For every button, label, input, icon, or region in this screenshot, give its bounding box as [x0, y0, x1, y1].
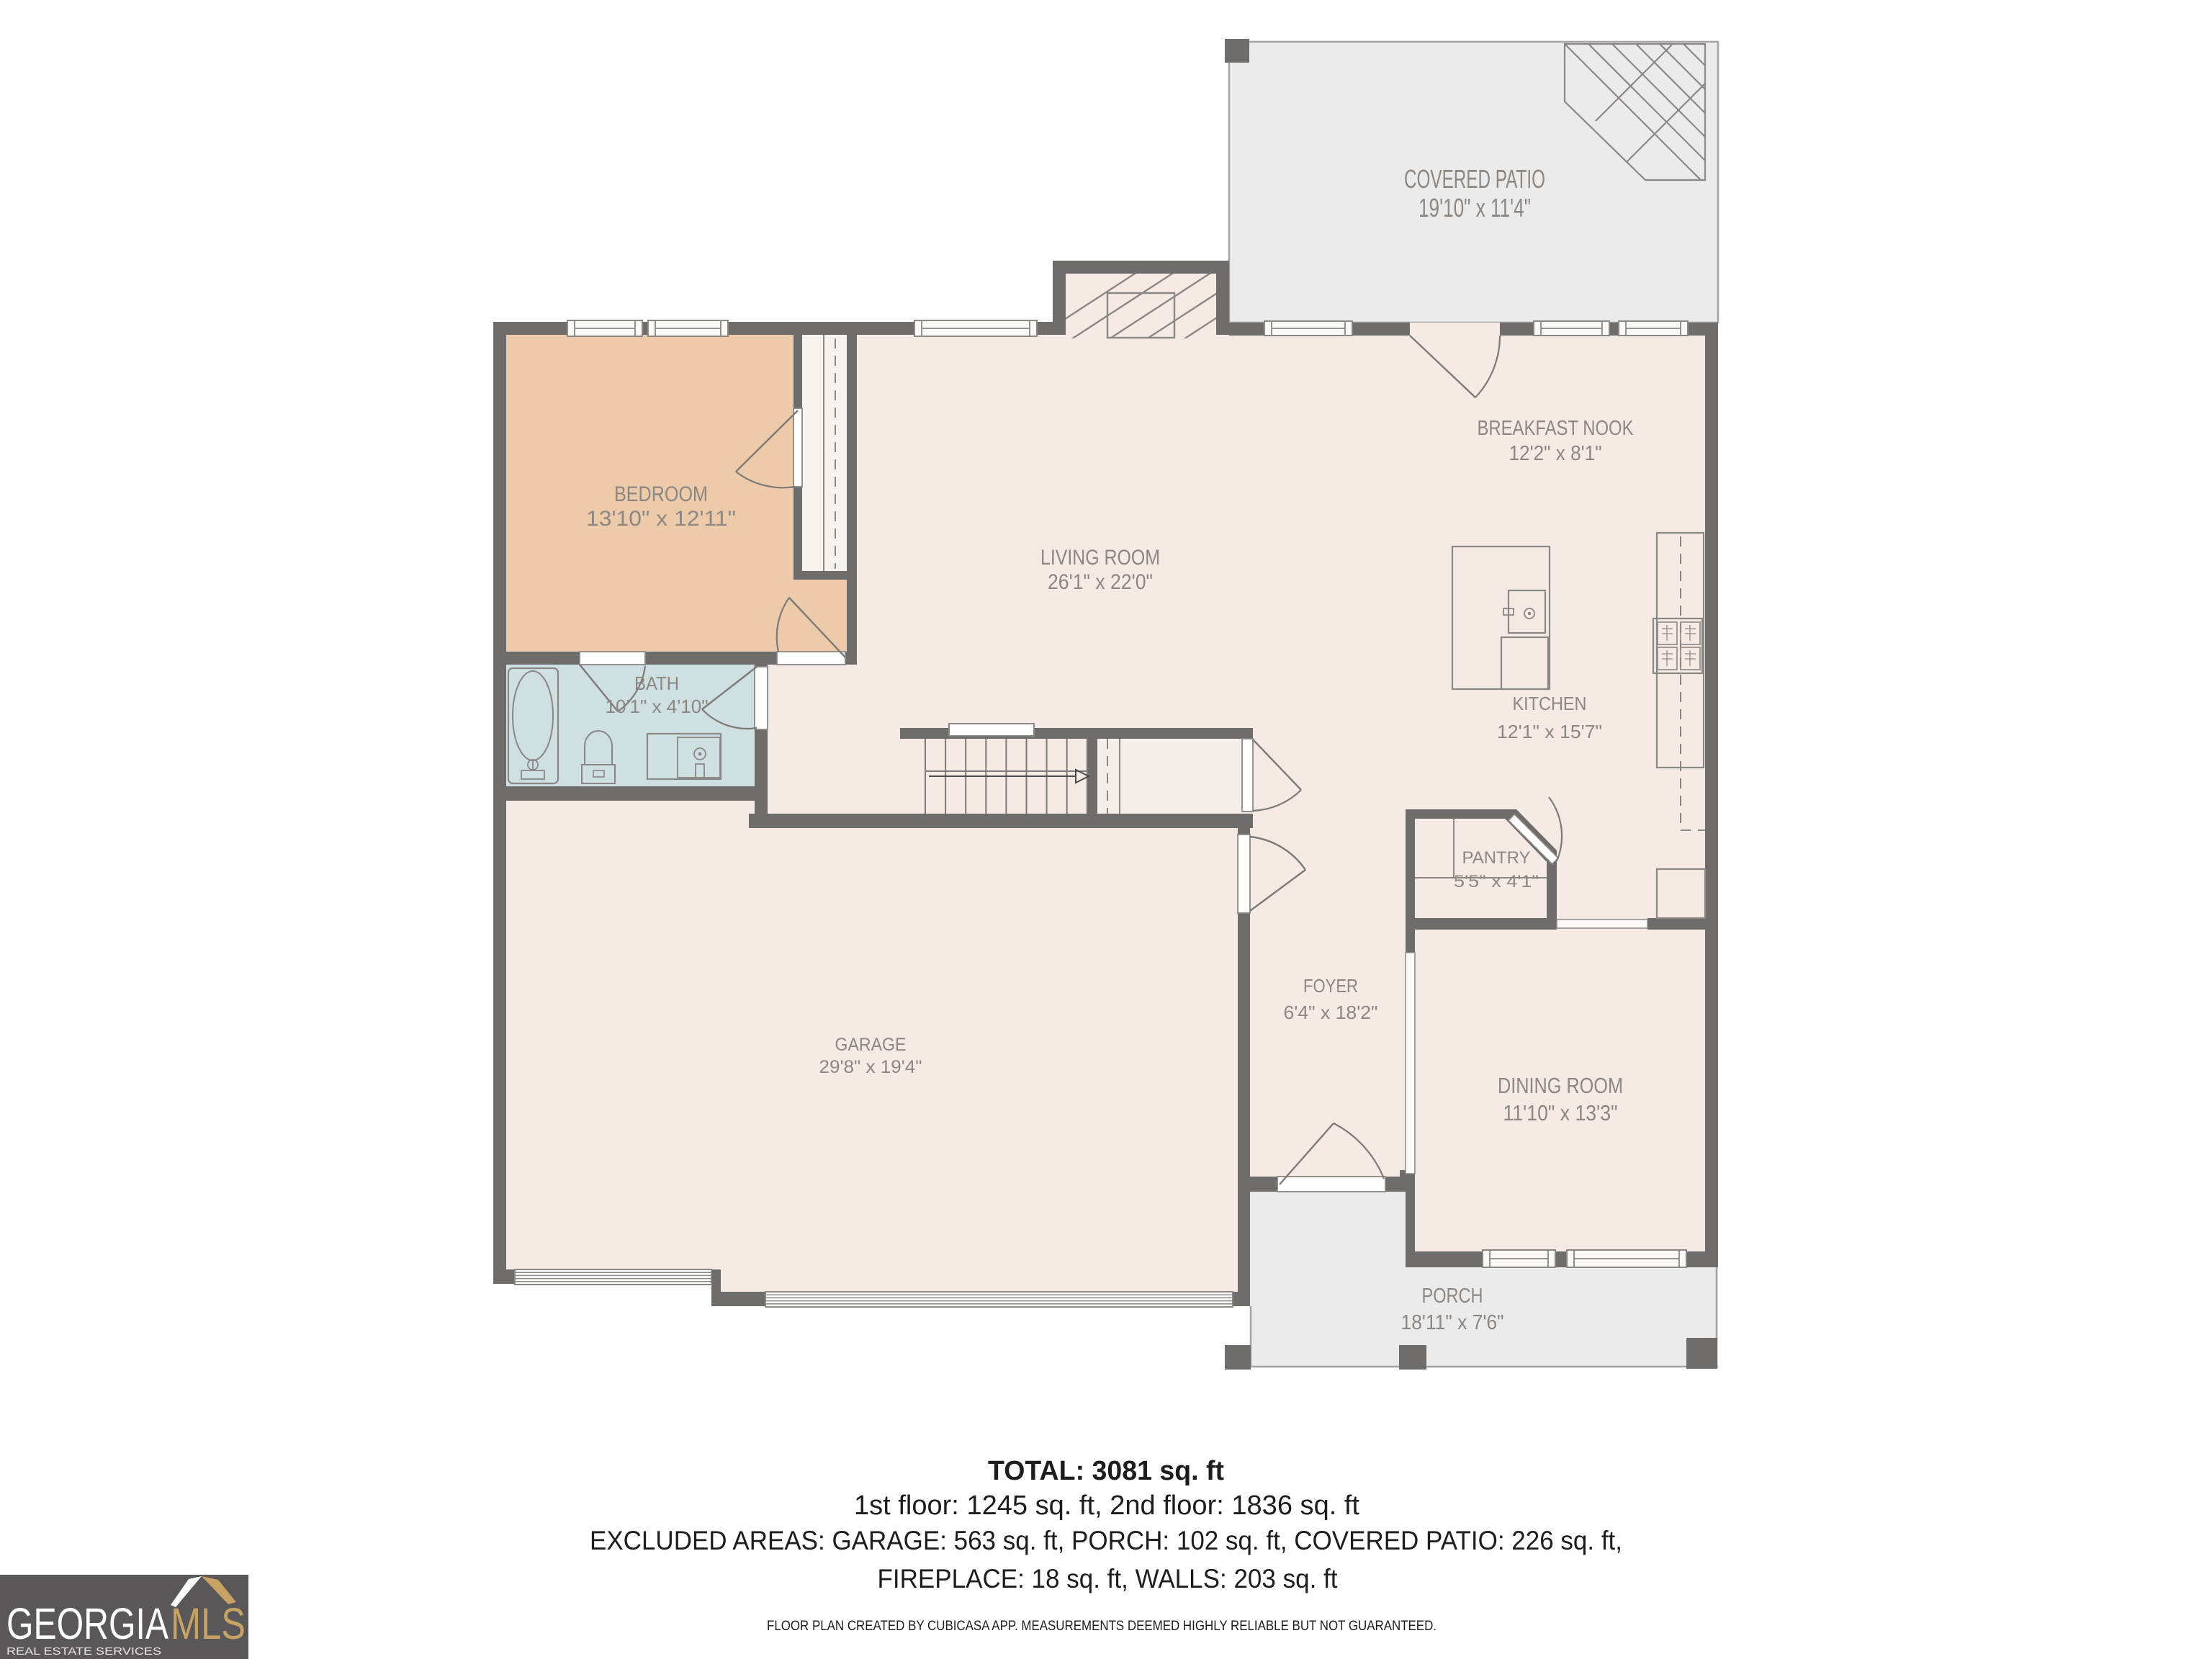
svg-text:MLS: MLS [171, 1599, 246, 1648]
svg-text:18'11" x 7'6": 18'11" x 7'6" [1401, 1311, 1504, 1334]
svg-text:BREAKFAST NOOK: BREAKFAST NOOK [1478, 417, 1635, 440]
svg-text:TOTAL: 3081 sq. ft: TOTAL: 3081 sq. ft [988, 1456, 1224, 1486]
svg-text:5'5" x 4'1": 5'5" x 4'1" [1454, 872, 1539, 891]
svg-text:PANTRY: PANTRY [1462, 848, 1531, 868]
svg-text:6'4" x 18'2": 6'4" x 18'2" [1284, 1002, 1378, 1023]
svg-text:FIREPLACE: 18 sq. ft, WALLS: 2: FIREPLACE: 18 sq. ft, WALLS: 203 sq. ft [878, 1564, 1339, 1593]
svg-text:12'2" x 8'1": 12'2" x 8'1" [1509, 442, 1602, 465]
svg-text:12'1" x 15'7": 12'1" x 15'7" [1497, 721, 1602, 742]
svg-text:BEDROOM: BEDROOM [614, 482, 708, 506]
svg-text:DINING ROOM: DINING ROOM [1498, 1073, 1623, 1098]
svg-text:FLOOR PLAN CREATED BY CUBICASA: FLOOR PLAN CREATED BY CUBICASA APP. MEAS… [767, 1619, 1437, 1634]
svg-text:PORCH: PORCH [1422, 1285, 1483, 1308]
svg-text:KITCHEN: KITCHEN [1513, 693, 1587, 714]
svg-text:29'8" x 19'4": 29'8" x 19'4" [819, 1057, 922, 1077]
svg-text:LIVING ROOM: LIVING ROOM [1040, 546, 1160, 570]
svg-text:FOYER: FOYER [1303, 975, 1358, 997]
svg-text:BATH: BATH [634, 673, 679, 694]
svg-text:GEORGIA: GEORGIA [6, 1599, 168, 1648]
svg-text:EXCLUDED AREAS: GARAGE: 563 sq: EXCLUDED AREAS: GARAGE: 563 sq. ft, PORC… [590, 1526, 1622, 1555]
svg-text:REAL ESTATE SERVICES: REAL ESTATE SERVICES [6, 1645, 161, 1658]
svg-text:10'1" x 4'10": 10'1" x 4'10" [606, 696, 709, 717]
svg-text:GARAGE: GARAGE [835, 1035, 907, 1055]
svg-text:COVERED PATIO: COVERED PATIO [1404, 164, 1545, 194]
svg-text:13'10" x 12'11": 13'10" x 12'11" [586, 507, 736, 531]
svg-text:26'1" x 22'0": 26'1" x 22'0" [1048, 570, 1153, 594]
svg-text:11'10" x 13'3": 11'10" x 13'3" [1503, 1100, 1618, 1125]
svg-text:19'10" x 11'4": 19'10" x 11'4" [1419, 193, 1531, 222]
svg-text:1st floor: 1245 sq. ft, 2nd fl: 1st floor: 1245 sq. ft, 2nd floor: 1836 … [854, 1491, 1359, 1521]
